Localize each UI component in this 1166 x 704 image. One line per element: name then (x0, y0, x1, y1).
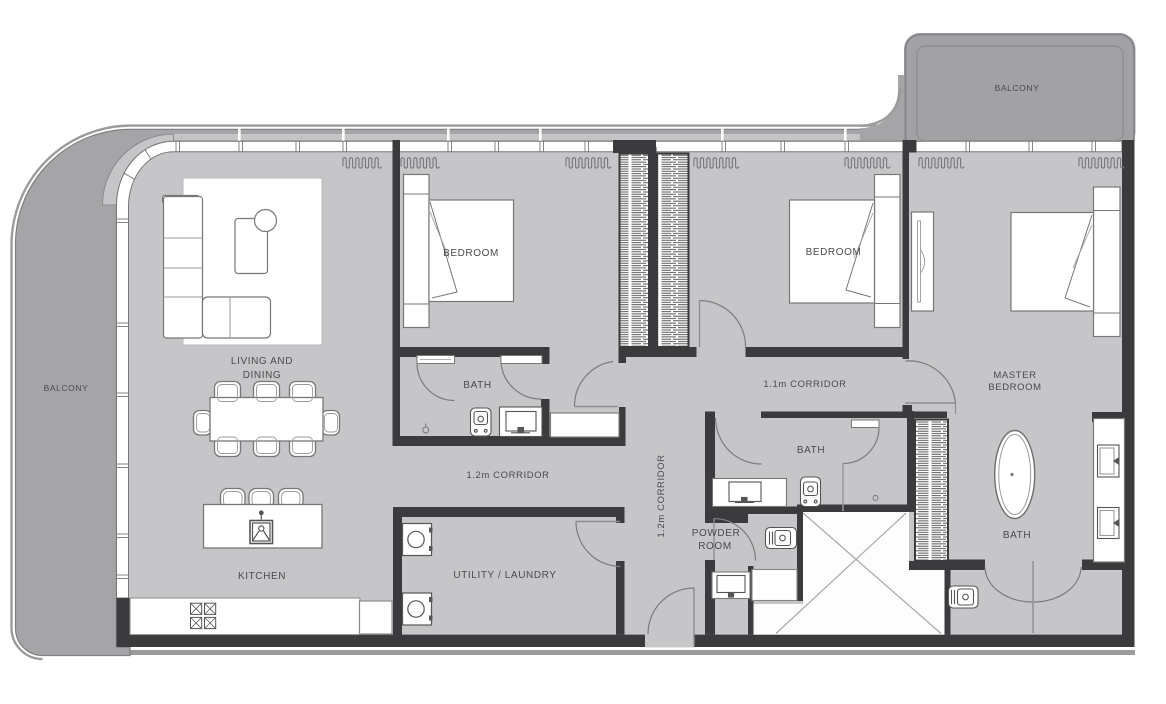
svg-text:LIVING AND: LIVING AND (231, 356, 293, 367)
svg-text:ROOM: ROOM (698, 541, 732, 552)
svg-text:1.2m CORRIDOR: 1.2m CORRIDOR (656, 454, 667, 537)
svg-text:MASTER: MASTER (993, 370, 1036, 381)
svg-text:POWDER: POWDER (692, 528, 741, 539)
svg-text:BATH: BATH (1003, 530, 1031, 541)
svg-text:1.2m CORRIDOR: 1.2m CORRIDOR (466, 470, 549, 481)
svg-text:BEDROOM: BEDROOM (443, 248, 499, 259)
svg-text:BEDROOM: BEDROOM (806, 247, 862, 258)
svg-text:DINING: DINING (243, 370, 282, 381)
svg-text:UTILITY / LAUNDRY: UTILITY / LAUNDRY (453, 570, 556, 581)
svg-text:1.1m CORRIDOR: 1.1m CORRIDOR (763, 379, 846, 390)
svg-text:BATH: BATH (463, 380, 491, 391)
svg-text:BALCONY: BALCONY (995, 83, 1040, 93)
svg-text:BEDROOM: BEDROOM (988, 382, 1041, 393)
svg-text:BATH: BATH (797, 445, 825, 456)
svg-text:BALCONY: BALCONY (44, 383, 89, 393)
svg-text:KITCHEN: KITCHEN (238, 571, 286, 582)
